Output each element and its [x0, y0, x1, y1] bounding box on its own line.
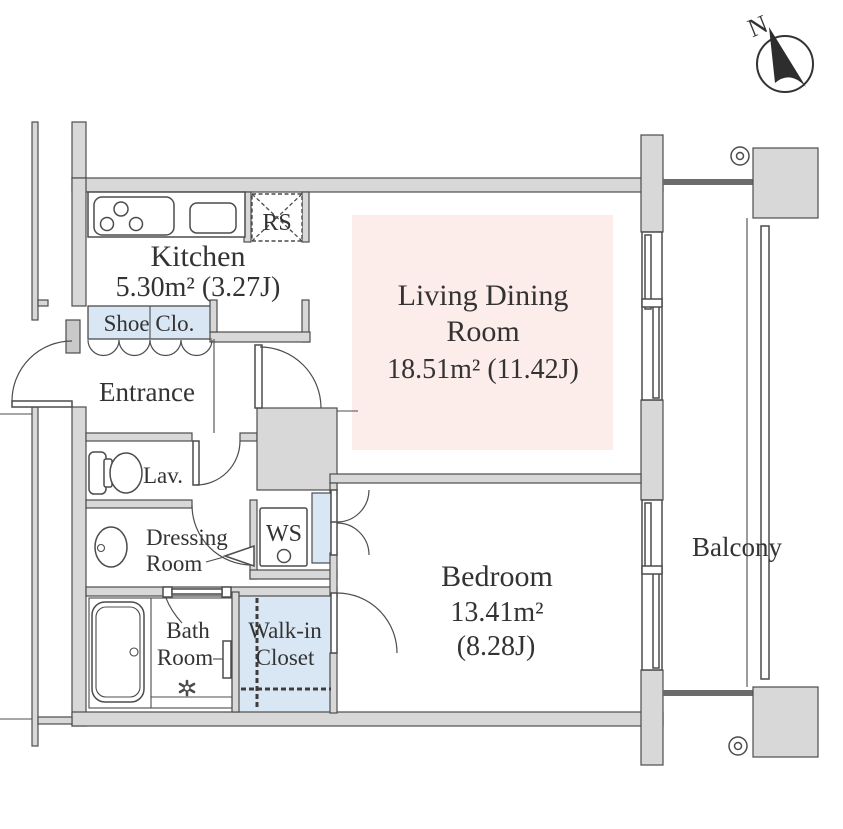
bath-room-label-1: Bath	[166, 618, 210, 643]
bedroom: Bedroom 13.41m² (8.28J)	[331, 490, 553, 662]
living-bedroom-wall	[330, 474, 641, 483]
lav-wall-north-east	[240, 433, 257, 441]
rs-label: RS	[262, 210, 291, 236]
lav-label: Lav.	[143, 463, 183, 488]
bedroom-door-swing-arc-upper	[337, 490, 369, 522]
kitchen-label: Kitchen	[151, 240, 246, 273]
wall-right-mid	[641, 400, 663, 500]
living-window-pane-2	[653, 301, 659, 398]
wall-top	[72, 178, 663, 192]
shoe-closet-label: Shoe Clo.	[104, 311, 195, 336]
living-window-joint	[642, 299, 662, 307]
balcony-wall-block-top	[753, 148, 818, 218]
bedroom-window-joint	[642, 566, 662, 574]
ws-wall-south	[250, 570, 337, 579]
compass-n-label: N	[744, 9, 772, 43]
bedroom-door-leaf-upper	[331, 490, 337, 523]
dressing-room: Dressing Room	[95, 505, 254, 576]
wall-left-lower	[72, 407, 86, 726]
front-door	[12, 341, 72, 407]
washbasin-icon	[95, 527, 127, 567]
living-dining-label-2: Room	[446, 315, 519, 348]
wall-left-upper	[72, 178, 86, 306]
living-dining-label-1: Living Dining	[398, 279, 569, 312]
outer-wall-lower	[32, 407, 38, 746]
kitchen-wall-rs-right	[302, 192, 309, 242]
wic-label-1: Walk-in	[248, 618, 322, 643]
living-window-pane-1	[645, 235, 651, 309]
wic-door-swing-arc	[337, 593, 397, 653]
hose-bib-icon	[731, 147, 749, 165]
wic-wall-west	[232, 592, 239, 712]
balcony-partition-bottom	[663, 690, 753, 696]
bedroom-wall-west-b	[330, 553, 337, 595]
dressing-door-leaf	[225, 546, 254, 566]
balcony-partition-top	[663, 179, 753, 185]
front-door-swing-arc	[12, 341, 72, 401]
balcony-structure: Balcony	[663, 147, 818, 757]
hall-living-door-leaf	[255, 345, 262, 408]
lav-dressing-wall	[86, 500, 192, 508]
kitchen: RS Kitchen 5.30m² (3.27J)	[88, 192, 302, 303]
bedroom-wall-west-c	[330, 653, 337, 713]
living-dining-area-label: 18.51m² (11.42J)	[387, 354, 579, 385]
dressing-leader-line	[206, 557, 224, 562]
bedroom-window-pane-1	[645, 503, 651, 571]
wall-right-lower	[641, 670, 663, 765]
shower-flower-icon	[180, 681, 194, 695]
wic-door	[331, 593, 397, 653]
entrance: Shoe Clo. Entrance	[12, 306, 321, 408]
kitchen-wall-stub	[210, 300, 217, 332]
hall-living-door-swing-arc	[260, 347, 321, 408]
wic-door-leaf	[331, 593, 337, 653]
bath-room: Bath Room	[89, 587, 232, 708]
kitchen-wall-south	[210, 332, 310, 342]
dressing-room-label-1: Dressing	[146, 525, 228, 550]
outer-wall-stub	[38, 300, 48, 306]
ws-wall-west	[250, 500, 257, 579]
entry-door-jamb	[66, 320, 80, 353]
shoe-closet-door-arcs	[88, 340, 212, 356]
balcony-wall-block-bottom	[753, 687, 818, 757]
bedroom-door-swing-arc-lower	[337, 523, 369, 555]
wall-right-upper	[641, 135, 663, 232]
wall-left-upper-stub	[72, 122, 86, 178]
pipe-shaft	[257, 408, 337, 490]
kitchen-area-label: 5.30m² (3.27J)	[116, 272, 281, 303]
lav-door	[193, 441, 240, 485]
lav-door-swing-arc	[196, 441, 240, 485]
stove-icon	[94, 197, 174, 235]
balcony-label: Balcony	[692, 532, 782, 562]
linen-shelf-strip	[312, 493, 332, 563]
wic-label-2: Closet	[256, 645, 315, 670]
bedroom-double-door	[331, 490, 369, 555]
bedroom-door-leaf-lower	[331, 522, 337, 555]
lavatory: Lav.	[89, 441, 240, 494]
lav-door-leaf	[193, 441, 199, 485]
balcony-railing-panel	[761, 226, 769, 679]
sink-icon	[190, 203, 236, 233]
outer-wall-connector	[38, 717, 72, 724]
hall-living-door	[255, 345, 321, 408]
front-door-leaf	[12, 401, 72, 407]
refrigerator-space: RS	[252, 194, 302, 241]
floor-plan-page: Balcony N RS Kitchen 5.30m² (3.27J) Shoe…	[0, 0, 843, 829]
ws-label: WS	[266, 521, 302, 547]
bathtub-icon	[92, 602, 144, 702]
washing-space: WS	[260, 508, 307, 566]
bedroom-area-label-1: 13.41m²	[450, 597, 543, 628]
bedroom-window-pane-2	[653, 569, 659, 668]
entrance-label: Entrance	[99, 377, 195, 407]
compass: N	[744, 9, 813, 92]
toilet-icon	[89, 452, 142, 494]
outer-wall-upper	[32, 122, 38, 320]
dressing-room-label-2: Room	[146, 551, 202, 576]
wall-bottom	[72, 712, 663, 726]
lav-wall-north-west	[86, 433, 192, 441]
hose-bib-icon	[729, 737, 747, 755]
bath-room-label-2: Room	[157, 645, 213, 670]
floor-plan-svg: Balcony N RS Kitchen 5.30m² (3.27J) Shoe…	[0, 0, 843, 829]
bedroom-area-label-2: (8.28J)	[457, 631, 536, 662]
bedroom-label: Bedroom	[441, 560, 553, 593]
bath-door-leaf	[223, 641, 231, 678]
